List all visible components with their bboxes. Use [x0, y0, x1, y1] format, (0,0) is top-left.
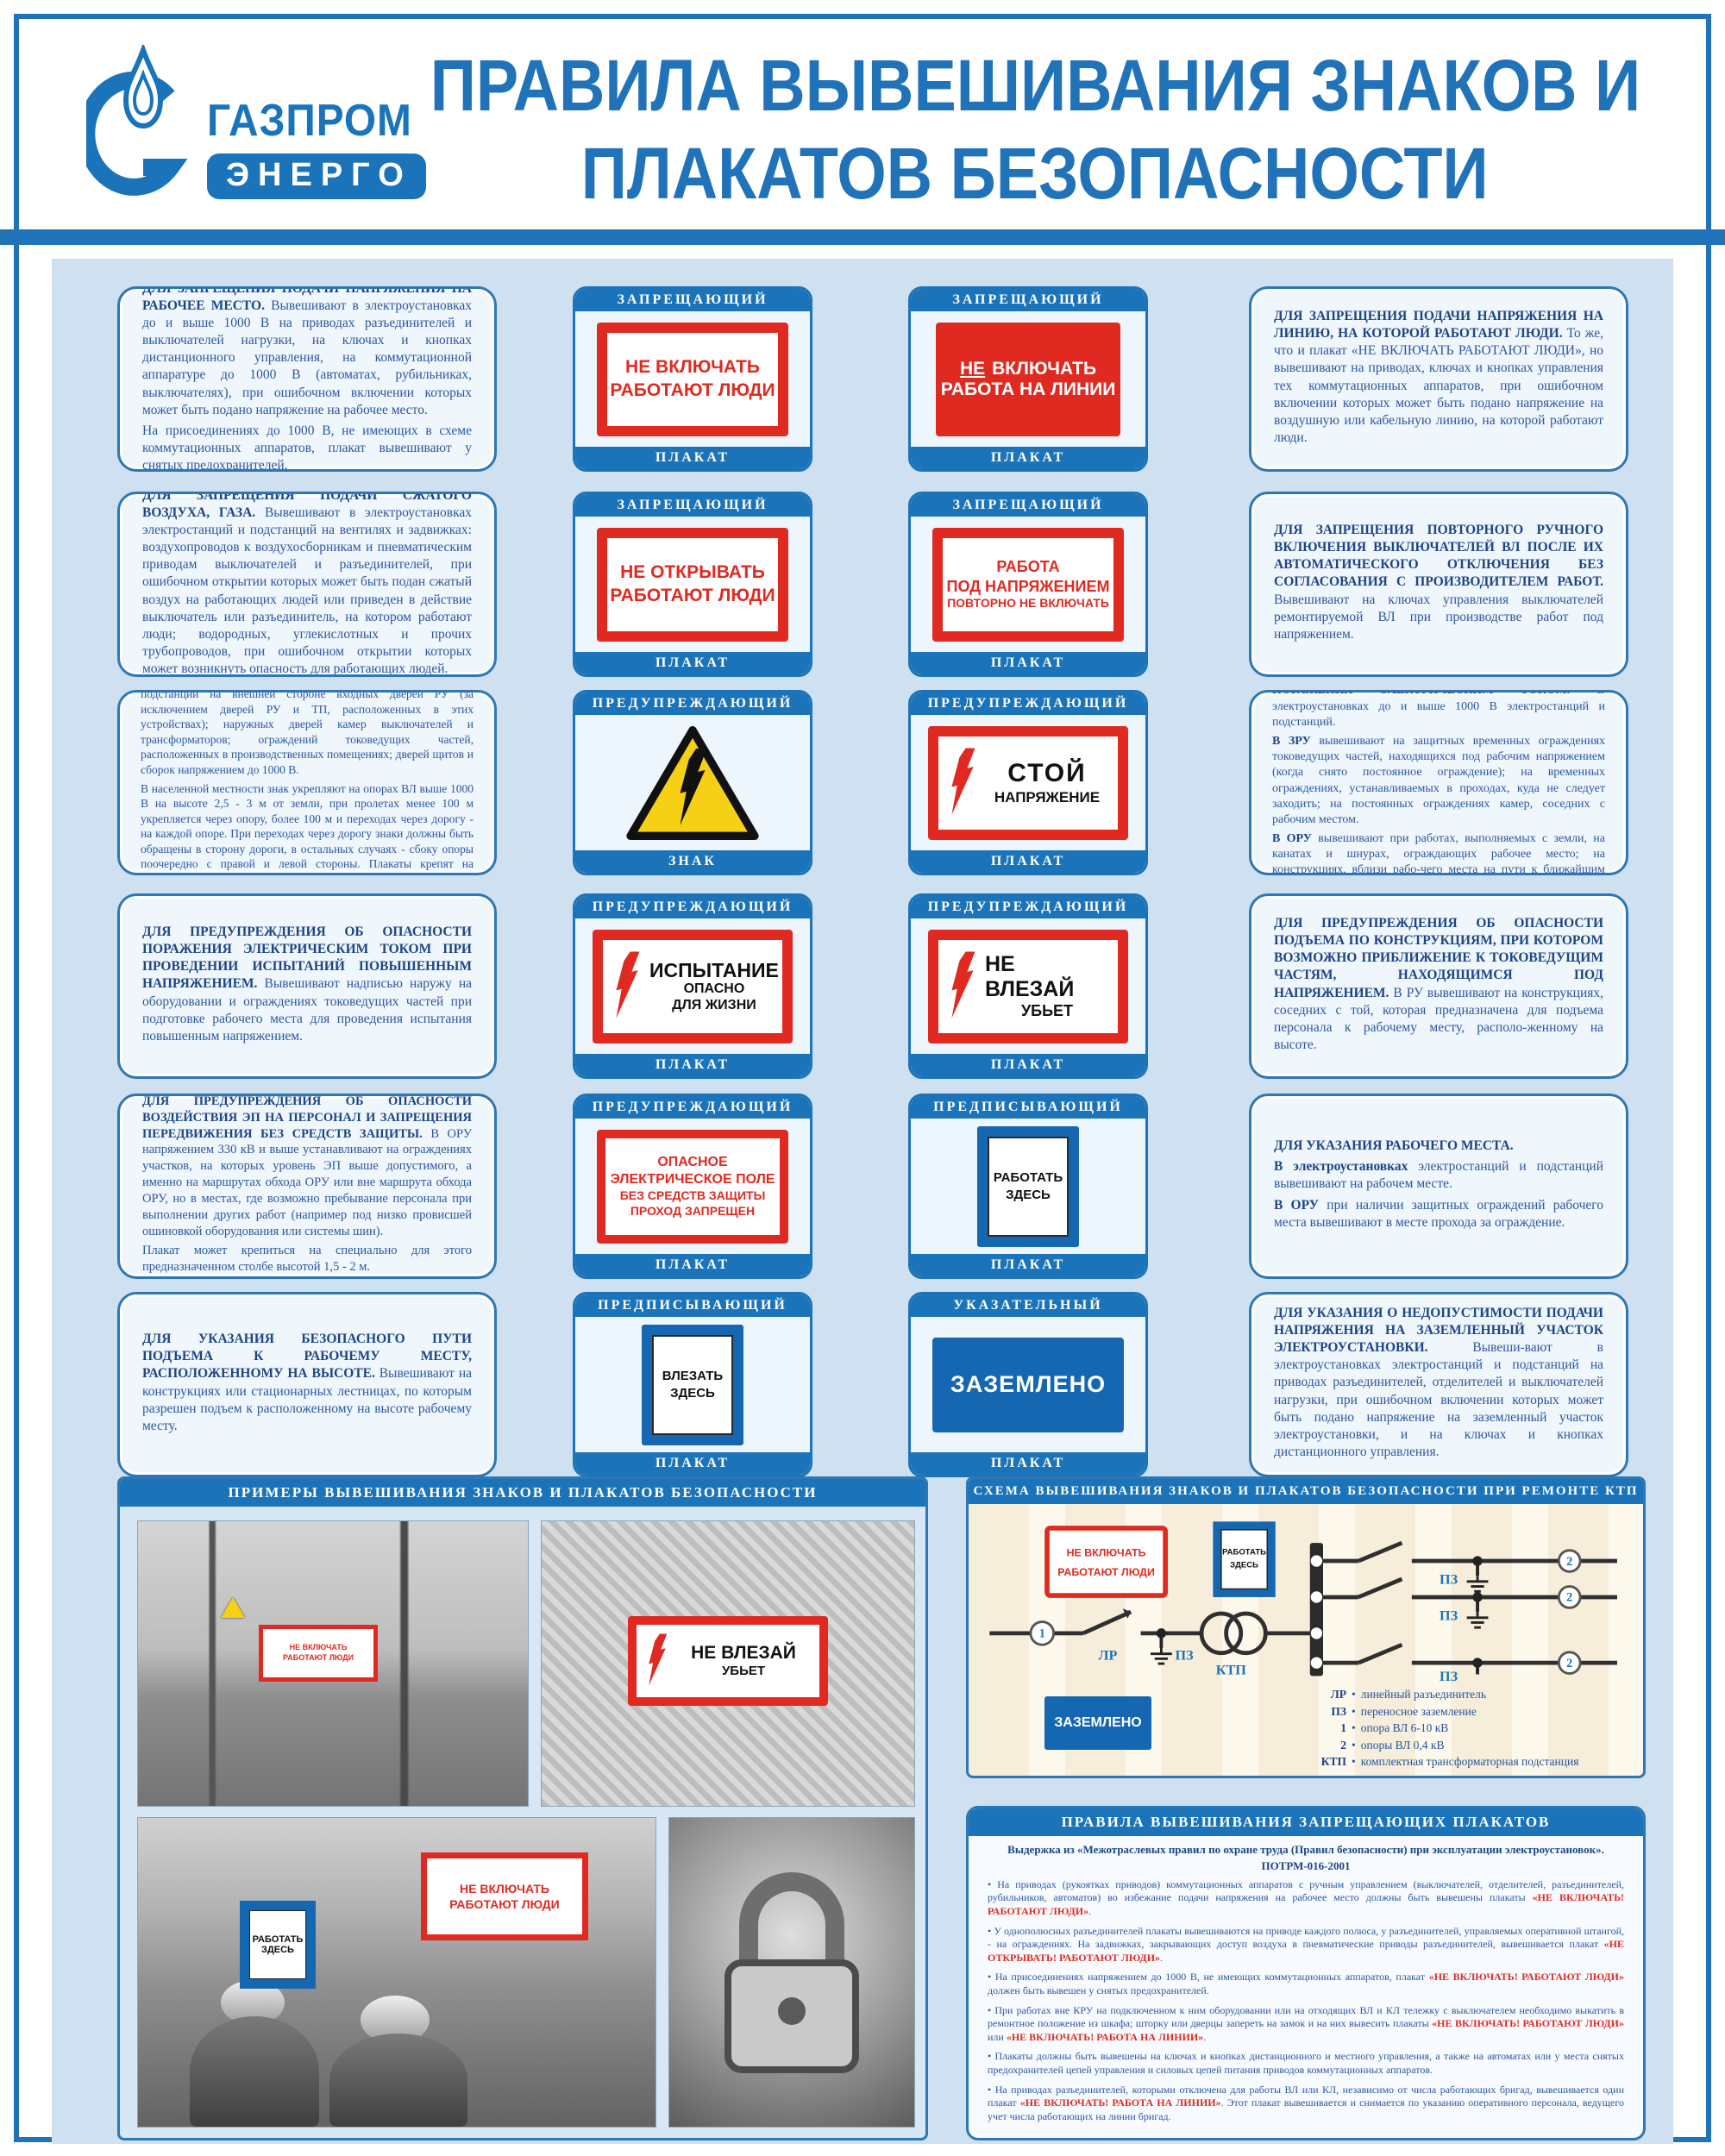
- ktp-label: КТП: [1216, 1662, 1247, 1677]
- sign-zazemleno: ЗАЗЕМЛЕНО: [932, 1338, 1124, 1432]
- examples-title: ПРИМЕРЫ ВЫВЕШИВАНИЯ ЗНАКОВ И ПЛАКАТОВ БЕ…: [120, 1479, 925, 1507]
- pz-label: ПЗ: [1440, 1572, 1458, 1588]
- info-block-climb-constructions: ДЛЯ ПРЕДУПРЕЖДЕНИЯ ОБ ОПАСНОСТИ ПОДЪЕМА …: [1249, 893, 1628, 1079]
- card-category: УКАЗАТЕЛЬНЫЙ: [911, 1294, 1145, 1317]
- rules-title: ПРАВИЛА ВЫВЕШИВАНИЯ ЗАПРЕЩАЮЩИХ ПЛАКАТОВ: [969, 1808, 1643, 1836]
- legend-item: КТП•комплектная трансформаторная подстан…: [1312, 1753, 1638, 1771]
- card-footer: ПЛАКАТ: [575, 1054, 810, 1076]
- scheme-sign-zazemleno: ЗАЗЕМЛЕНО: [1044, 1696, 1151, 1750]
- card-footer: ЗНАК: [575, 850, 810, 873]
- info-block-workplace: ДЛЯ УКАЗАНИЯ РАБОЧЕГО МЕСТА. В электроус…: [1249, 1094, 1628, 1279]
- rule-bullet: • На приводах (рукоятках приводов) комму…: [988, 1878, 1624, 1919]
- info-block-grounded-section: ДЛЯ УКАЗАНИЯ О НЕДОПУСТИМОСТИ ПОДАЧИ НАП…: [1249, 1292, 1628, 1477]
- info-block-voltage-workplace: ДЛЯ ЗАПРЕЩЕНИЯ ПОДАЧИ НАПРЯЖЕНИЯ НА РАБО…: [117, 286, 497, 472]
- card-footer: ПЛАКАТ: [911, 1054, 1145, 1076]
- info-body: Знак укрепляют в электроустановках до и …: [141, 690, 474, 776]
- ktp-circuit-diagram: 1 ЛР ПЗ КТП ПЗ 2: [969, 1510, 1643, 1683]
- lightning-icon: [947, 746, 978, 820]
- gazprom-logo: ГАЗПРОМ ЭНЕРГО: [86, 45, 405, 222]
- info-block-electric-shock-poster: ДЛЯ ПРЕДУПРЕЖДЕНИЯ ОБ ОПАСНОСТИ ПОРАЖЕНИ…: [1249, 690, 1628, 875]
- card-footer: ПЛАКАТ: [575, 652, 810, 674]
- info-block-safe-climb-path: ДЛЯ УКАЗАНИЯ БЕЗОПАСНОГО ПУТИ ПОДЪЕМА К …: [117, 1292, 497, 1477]
- info-block-electric-field: ДЛЯ ПРЕДУПРЕЖДЕНИЯ ОБ ОПАСНОСТИ ВОЗДЕЙСТ…: [117, 1094, 497, 1279]
- info-block-electric-shock-sign: ДЛЯ ПРЕДУПРЕЖДЕНИЯ ОБ ОПАСНОСТИ ПОРАЖЕНИ…: [117, 690, 497, 875]
- lightning-icon: [612, 950, 643, 1024]
- sign-card-warning-triangle: ПРЕДУПРЕЖДАЮЩИЙ ЗНАК: [573, 690, 812, 875]
- info-block-high-voltage-test: ДЛЯ ПРЕДУПРЕЖДЕНИЯ ОБ ОПАСНОСТИ ПОРАЖЕНИ…: [117, 893, 497, 1079]
- info-heading: ДЛЯ ПРЕДУПРЕЖДЕНИЯ ОБ ОПАСНОСТИ ВОЗДЕЙСТ…: [142, 1094, 472, 1141]
- worker-silhouette: [190, 2016, 319, 2127]
- mini-sign-ne-vklyuchat: НЕ ВКЛЮЧАТЬ РАБОТАЮТ ЛЮДИ: [259, 1625, 378, 1682]
- info-body: Вывеши-вают в электроустановках электрос…: [1274, 1340, 1603, 1459]
- scheme-sign-line2: РАБОТАЮТ ЛЮДИ: [1057, 1566, 1155, 1578]
- info-body: В населенной местности знак укрепляют на…: [141, 782, 474, 876]
- card-footer: ПЛАКАТ: [575, 1254, 810, 1276]
- gazprom-flame-icon: [86, 45, 198, 217]
- info-block-voltage-line: ДЛЯ ЗАПРЕЩЕНИЯ ПОДАЧИ НАПРЯЖЕНИЯ НА ЛИНИ…: [1249, 286, 1628, 472]
- pz-label: ПЗ: [1440, 1608, 1458, 1624]
- high-voltage-triangle-icon: [624, 723, 762, 843]
- sign-card-opasnoe-pole: ПРЕДУПРЕЖДАЮЩИЙ ОПАСНОЕ ЭЛЕКТРИЧЕСКОЕ ПО…: [573, 1094, 812, 1279]
- examples-panel: ПРИМЕРЫ ВЫВЕШИВАНИЯ ЗНАКОВ И ПЛАКАТОВ БЕ…: [117, 1476, 928, 2140]
- card-category: ЗАПРЕЩАЮЩИЙ: [575, 494, 810, 517]
- scheme-sign-line2: ЗДЕСЬ: [1230, 1561, 1258, 1570]
- info-heading: ДЛЯ УКАЗАНИЯ РАБОЧЕГО МЕСТА.: [1274, 1138, 1514, 1153]
- info-body: То же, что и плакат «НЕ ВКЛЮЧАТЬ РАБОТАЮ…: [1274, 326, 1603, 445]
- logo-text: ГАЗПРОМ ЭНЕРГО: [207, 45, 430, 222]
- card-footer: ПЛАКАТ: [575, 447, 810, 469]
- rule-bullet: • На присоединениях напряжением до 1000 …: [988, 1971, 1624, 1997]
- card-category: ПРЕДПИСЫВАЮЩИЙ: [911, 1096, 1145, 1119]
- header-divider: [0, 229, 1725, 245]
- scheme-sign-line1: РАБОТАТЬ: [1222, 1547, 1266, 1557]
- safety-poster: ГАЗПРОМ ЭНЕРГО ПРАВИЛА ВЫВЕШИВАНИЯ ЗНАКО…: [0, 0, 1725, 2156]
- card-category: ЗАПРЕЩАЮЩИЙ: [575, 289, 810, 311]
- brand-name: ГАЗПРОМ: [207, 95, 412, 147]
- sign-card-rabota-pod-napryazheniem: ЗАПРЕЩАЮЩИЙ РАБОТА ПОД НАПРЯЖЕНИЕМ ПОВТО…: [908, 492, 1148, 677]
- rule-bullet: • При работах вне КРУ на подключенном к …: [988, 2004, 1624, 2045]
- info-heading: ДЛЯ ЗАПРЕЩЕНИЯ ПОДАЧИ НАПРЯЖЕНИЯ НА ЛИНИ…: [1274, 309, 1603, 341]
- lightning-icon: [947, 950, 978, 1024]
- scheme-title: СХЕМА ВЫВЕШИВАНИЯ ЗНАКОВ И ПЛАКАТОВ БЕЗО…: [969, 1479, 1643, 1504]
- poster-title-line2: ПЛАКАТОВ БЕЗОПАСНОСТИ: [581, 129, 1489, 217]
- card-category: ЗАПРЕЩАЮЩИЙ: [911, 289, 1145, 311]
- sign-ne-vlezay: НЕ ВЛЕЗАЙ УБЬЕТ: [928, 930, 1128, 1044]
- mini-sign-rabotat-zdes: РАБОТАТЬ ЗДЕСЬ: [240, 1901, 316, 1989]
- sign-ispytanie: ИСПЫТАНИЕ ОПАСНО ДЛЯ ЖИЗНИ: [593, 930, 793, 1044]
- sign-stoy-napryazhenie: СТОЙ НАПРЯЖЕНИЕ: [928, 726, 1128, 840]
- card-footer: ПЛАКАТ: [911, 1452, 1145, 1475]
- sign-card-ispytanie: ПРЕДУПРЕЖДАЮЩИЙ ИСПЫТАНИЕ ОПАСНО ДЛЯ ЖИЗ…: [573, 893, 812, 1079]
- info-body: Вывешивают в электроустановках до и выше…: [142, 298, 472, 417]
- card-category: ЗАПРЕЩАЮЩИЙ: [911, 494, 1145, 517]
- info-body: Вывешивают в электроустановках электрост…: [142, 505, 472, 676]
- pz-label: ПЗ: [1440, 1669, 1458, 1683]
- sign-card-rabotat-zdes: ПРЕДПИСЫВАЮЩИЙ РАБОТАТЬ ЗДЕСЬ ПЛАКАТ: [908, 1094, 1148, 1279]
- rules-subtitle: Выдержка из «Межотраслевых правил по охр…: [994, 1843, 1617, 1858]
- warning-triangle-icon: [221, 1597, 245, 1618]
- card-category: ПРЕДУПРЕЖДАЮЩИЙ: [911, 693, 1145, 715]
- sign-ne-otkryvat: НЕ ОТКРЫВАТЬ РАБОТАЮТ ЛЮДИ: [597, 528, 788, 642]
- photo-power-lines: НЕ ВКЛЮЧАТЬ РАБОТАЮТ ЛЮДИ: [137, 1520, 529, 1807]
- card-category: ПРЕДУПРЕЖДАЮЩИЙ: [911, 896, 1145, 918]
- sign-ne-vklyuchat-liniya: НЕВКЛЮЧАТЬ РАБОТА НА ЛИНИИ: [936, 323, 1120, 436]
- info-body: Плакат может крепиться на специально для…: [142, 1244, 472, 1274]
- sign-rabota-pod-napryazheniem: РАБОТА ПОД НАПРЯЖЕНИЕМ ПОВТОРНО НЕ ВКЛЮЧ…: [932, 528, 1124, 642]
- rule-bullet: • У однополюсных разъединителей плакаты …: [988, 1925, 1624, 1965]
- info-block-compressed-air: ДЛЯ ЗАПРЕЩЕНИЯ ПОДАЧИ СЖАТОГО ВОЗДУХА, Г…: [117, 492, 497, 677]
- info-body: вывешивают при работах, выполняемых с зе…: [1272, 832, 1605, 875]
- sign-vlezat-zdes: ВЛЕЗАТЬ ЗДЕСЬ: [642, 1325, 743, 1445]
- mini-sign-ne-vlezay: НЕ ВЛЕЗАЙ УБЬЕТ: [628, 1616, 828, 1706]
- photo-padlock: [668, 1817, 915, 2128]
- card-category: ПРЕДУПРЕЖДАЮЩИЙ: [575, 1096, 810, 1119]
- card-footer: ПЛАКАТ: [911, 447, 1145, 469]
- photo-workers: РАБОТАТЬ ЗДЕСЬ НЕ ВКЛЮЧАТЬ РАБОТАЮТ ЛЮДИ: [137, 1817, 656, 2128]
- padlock-icon: [669, 1818, 914, 2127]
- info-body: вывешивают на защитных временных огражде…: [1272, 735, 1605, 826]
- poster-title-line1: ПРАВИЛА ВЫВЕШИВАНИЯ ЗНАКОВ И: [430, 41, 1640, 129]
- node-2-label: 2: [1566, 1657, 1572, 1670]
- sign-card-ne-vklyuchat-liniya: ЗАПРЕЩАЮЩИЙ НЕВКЛЮЧАТЬ РАБОТА НА ЛИНИИ П…: [908, 286, 1148, 472]
- rules-subtitle-doc: ПОТРМ-016-2001: [994, 1859, 1617, 1873]
- card-footer: ПЛАКАТ: [911, 850, 1145, 873]
- sign-card-ne-vlezay: ПРЕДУПРЕЖДАЮЩИЙ НЕ ВЛЕЗАЙ УБЬЕТ ПЛАКАТ: [908, 893, 1148, 1079]
- mini-sign-ne-vklyuchat: НЕ ВКЛЮЧАТЬ РАБОТАЮТ ЛЮДИ: [421, 1852, 588, 1940]
- brand-subname: ЭНЕРГО: [207, 154, 426, 199]
- info-body: В ОРУ напряжением 330 кВ и выше устанавл…: [142, 1127, 472, 1238]
- sign-card-ne-vklyuchat-rabotayut: ЗАПРЕЩАЮЩИЙ НЕ ВКЛЮЧАТЬ РАБОТАЮТ ЛЮДИ ПЛ…: [573, 286, 812, 472]
- scheme-legend: ЛР•линейный разъединитель ПЗ•переносное …: [1312, 1686, 1638, 1771]
- node-2-label: 2: [1566, 1591, 1572, 1605]
- card-category: ПРЕДУПРЕЖДАЮЩИЙ: [575, 693, 810, 715]
- scheme-panel: СХЕМА ВЫВЕШИВАНИЯ ЗНАКОВ И ПЛАКАТОВ БЕЗО…: [966, 1476, 1646, 1778]
- card-footer: ПЛАКАТ: [911, 652, 1145, 674]
- node-2-label: 2: [1566, 1555, 1572, 1569]
- legend-item: 1•опора ВЛ 6-10 кВ: [1312, 1720, 1638, 1737]
- card-footer: ПЛАКАТ: [575, 1452, 810, 1475]
- legend-item: ПЗ•переносное заземление: [1312, 1703, 1638, 1720]
- sign-card-zazemleno: УКАЗАТЕЛЬНЫЙ ЗАЗЕМЛЕНО ПЛАКАТ: [908, 1292, 1148, 1477]
- rules-panel: ПРАВИЛА ВЫВЕШИВАНИЯ ЗАПРЕЩАЮЩИХ ПЛАКАТОВ…: [966, 1806, 1646, 2140]
- rule-bullet: • На приводах разъединителей, которыми о…: [988, 2084, 1624, 2124]
- sign-ne-vklyuchat-rabotayut: НЕ ВКЛЮЧАТЬ РАБОТАЮТ ЛЮДИ: [597, 323, 788, 436]
- worker-silhouette: [329, 2034, 467, 2127]
- poster-title: ПРАВИЛА ВЫВЕШИВАНИЯ ЗНАКОВ И ПЛАКАТОВ БЕ…: [414, 34, 1656, 224]
- lightning-icon: [645, 1633, 669, 1689]
- info-body: Вывешивают на ключах управления выключат…: [1274, 592, 1603, 642]
- sign-card-vlezat-zdes: ПРЕДПИСЫВАЮЩИЙ ВЛЕЗАТЬ ЗДЕСЬ ПЛАКАТ: [573, 1292, 812, 1477]
- sign-rabotat-zdes: РАБОТАТЬ ЗДЕСЬ: [977, 1126, 1079, 1247]
- info-body: при наличии защитных ограждений рабочего…: [1274, 1198, 1603, 1230]
- info-body: На присоединениях до 1000 В, не имеющих …: [142, 423, 472, 472]
- photo-fence: НЕ ВЛЕЗАЙ УБЬЕТ: [541, 1520, 915, 1807]
- info-heading: ДЛЯ ПРЕДУПРЕЖДЕНИЯ ОБ ОПАСНОСТИ ПОРАЖЕНИ…: [1272, 690, 1605, 697]
- info-block-repeat-switch-on: ДЛЯ ЗАПРЕЩЕНИЯ ПОВТОРНОГО РУЧНОГО ВКЛЮЧЕ…: [1249, 492, 1628, 677]
- card-category: ПРЕДПИСЫВАЮЩИЙ: [575, 1294, 810, 1317]
- rule-bullet: • Плакаты должны быть вывешены на ключах…: [988, 2050, 1624, 2077]
- legend-item: 2•опоры ВЛ 0,4 кВ: [1312, 1737, 1638, 1754]
- legend-item: ЛР•линейный разъединитель: [1312, 1686, 1638, 1703]
- sign-card-ne-otkryvat: ЗАПРЕЩАЮЩИЙ НЕ ОТКРЫВАТЬ РАБОТАЮТ ЛЮДИ П…: [573, 492, 812, 677]
- info-heading: ДЛЯ ЗАПРЕЩЕНИЯ ПОВТОРНОГО РУЧНОГО ВКЛЮЧЕ…: [1274, 523, 1603, 589]
- card-category: ПРЕДУПРЕЖДАЮЩИЙ: [575, 896, 810, 918]
- card-footer: ПЛАКАТ: [911, 1254, 1145, 1276]
- lr-label: ЛР: [1098, 1647, 1117, 1663]
- sign-opasnoe-pole: ОПАСНОЕ ЭЛЕКТРИЧЕСКОЕ ПОЛЕ БЕЗ СРЕДСТВ З…: [597, 1130, 788, 1244]
- sign-card-stoy-napryazhenie: ПРЕДУПРЕЖДАЮЩИЙ СТОЙ НАПРЯЖЕНИЕ ПЛАКАТ: [908, 690, 1148, 875]
- node-1-label: 1: [1039, 1627, 1045, 1641]
- scheme-sign-line1: НЕ ВКЛЮЧАТЬ: [1067, 1546, 1146, 1558]
- pz-label: ПЗ: [1176, 1647, 1195, 1663]
